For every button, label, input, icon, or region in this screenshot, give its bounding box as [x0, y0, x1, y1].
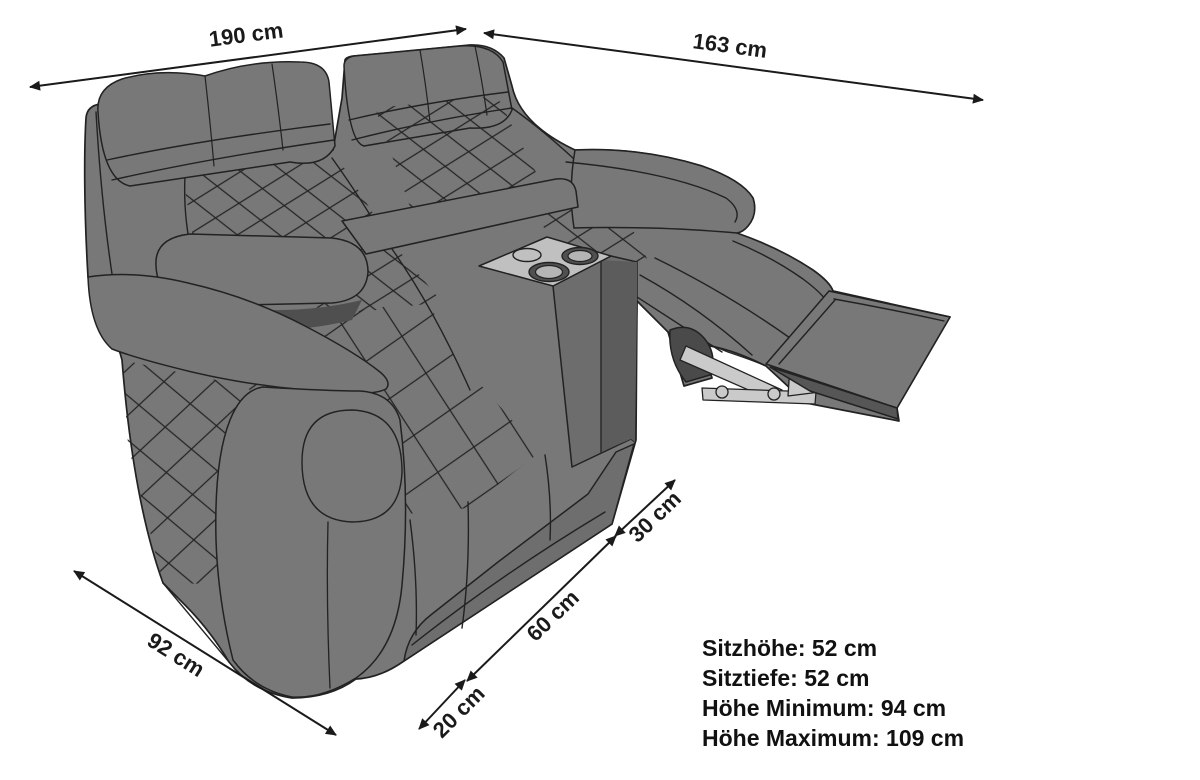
svg-text:Sitztiefe: 52 cm: Sitztiefe: 52 cm	[702, 665, 869, 691]
svg-text:Sitzhöhe: 52 cm: Sitzhöhe: 52 cm	[702, 635, 877, 661]
svg-text:Höhe Minimum: 94 cm: Höhe Minimum: 94 cm	[702, 695, 946, 721]
svg-text:Höhe Maximum: 109 cm: Höhe Maximum: 109 cm	[702, 725, 964, 751]
